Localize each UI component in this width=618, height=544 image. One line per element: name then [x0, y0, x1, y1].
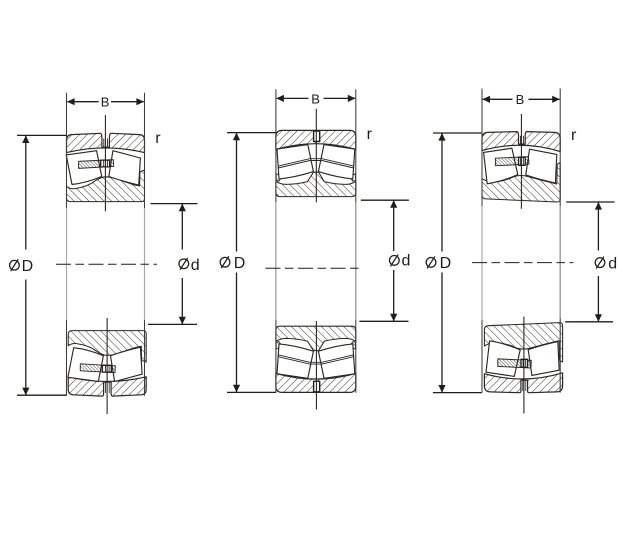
svg-text:d: d — [191, 257, 200, 274]
svg-text:D: D — [22, 258, 34, 275]
svg-text:D: D — [440, 255, 452, 272]
svg-text:r: r — [367, 126, 373, 143]
svg-text:D: D — [234, 255, 246, 272]
svg-text:r: r — [155, 130, 161, 147]
svg-text:B: B — [311, 91, 320, 106]
svg-text:r: r — [571, 127, 577, 144]
svg-text:d: d — [402, 252, 411, 269]
svg-text:d: d — [608, 255, 617, 272]
svg-text:B: B — [101, 94, 110, 109]
svg-text:B: B — [516, 92, 525, 107]
